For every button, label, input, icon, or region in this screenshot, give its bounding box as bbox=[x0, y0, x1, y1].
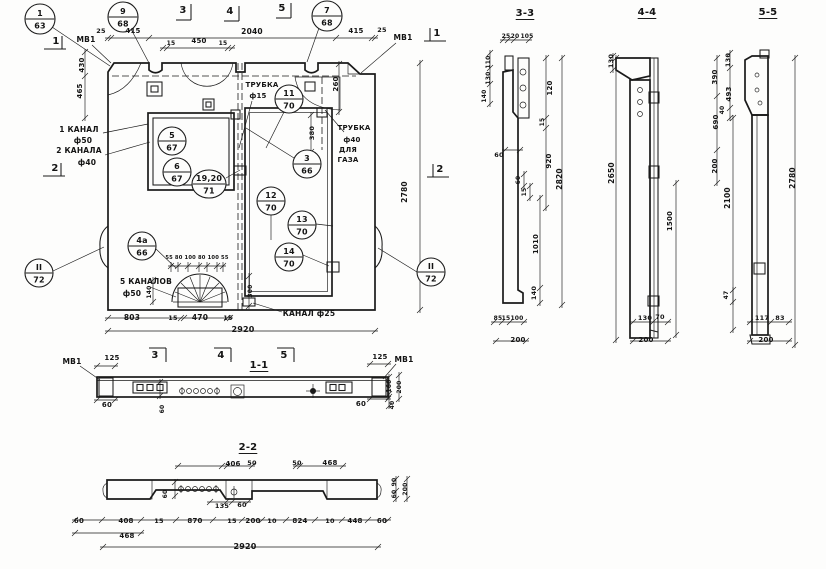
callout-sheet-ref: 67 bbox=[166, 144, 178, 153]
dim-label: 60 bbox=[391, 490, 398, 499]
dim-label: 130 bbox=[724, 53, 732, 67]
dim-label: 60 bbox=[162, 490, 169, 499]
callout-mark: 5 bbox=[169, 131, 175, 140]
dim-label: 390 bbox=[711, 69, 719, 84]
section-1-1-view bbox=[97, 377, 388, 398]
section-5-5-view bbox=[745, 50, 770, 344]
dim-label: 130 bbox=[638, 314, 652, 322]
dim-label: 468 bbox=[119, 532, 134, 540]
callout-mark: 11 bbox=[283, 89, 295, 98]
dim-label: 130 bbox=[485, 71, 492, 84]
right-keyway bbox=[375, 226, 382, 268]
section-4-4-view bbox=[616, 58, 659, 338]
note-tube-gas: ТРУБКА bbox=[338, 124, 371, 132]
section-mark: 3 bbox=[151, 350, 158, 361]
dim-label: 2780 bbox=[400, 181, 409, 203]
dim-label: 50 bbox=[247, 459, 257, 467]
callout-mark: II bbox=[428, 262, 434, 271]
dim-label: 25 bbox=[96, 27, 106, 35]
dim-label: 160 bbox=[386, 379, 393, 392]
dim-label: ГАЗА bbox=[337, 156, 358, 164]
section-mark: 2 bbox=[51, 163, 58, 174]
section-mark: 1 bbox=[52, 36, 59, 47]
drawing-sheet: 163968768117056766719,207136612701370147… bbox=[0, 0, 826, 569]
dim-label: 1010 bbox=[532, 234, 540, 254]
dim-label: 200 bbox=[245, 517, 260, 525]
callout-5-67: 567 bbox=[158, 127, 186, 155]
dim-label: 135 bbox=[215, 502, 229, 510]
note-2-kanala: 2 КАНАЛА bbox=[56, 146, 101, 155]
callout-sheet-ref: 71 bbox=[203, 187, 215, 196]
dim-label: 200 bbox=[711, 158, 719, 173]
dim-label: 117 bbox=[755, 314, 769, 322]
dim-label: 70 bbox=[655, 313, 665, 321]
dim-label: 690 bbox=[712, 114, 720, 129]
dim-label: 200 bbox=[510, 336, 525, 344]
dim-label: 15 bbox=[502, 315, 511, 322]
label-mv1: МВ1 bbox=[77, 35, 96, 44]
dim-label: 140 bbox=[481, 89, 488, 102]
dim-label: 60 bbox=[515, 176, 522, 185]
dim-label: 824 bbox=[292, 517, 307, 525]
callout-11-70: 1170 bbox=[275, 85, 303, 113]
dim-label: 1500 bbox=[666, 211, 674, 231]
dim-label: ф50 bbox=[74, 136, 92, 145]
callout-sheet-ref: 70 bbox=[283, 102, 295, 111]
dim-label: 10 bbox=[325, 517, 335, 525]
lifting-slot bbox=[181, 63, 233, 86]
dim-label: 60 bbox=[102, 401, 112, 409]
dim-label: 200 bbox=[638, 336, 653, 344]
section-mark: 1 bbox=[433, 28, 440, 39]
dim-label: 140 bbox=[146, 285, 153, 298]
section-2-2-view bbox=[103, 480, 381, 499]
dim-label: 15 bbox=[168, 314, 178, 322]
callout-mark: 9 bbox=[120, 7, 126, 16]
dim-label: 450 bbox=[191, 37, 206, 45]
dim-label: 15 bbox=[223, 314, 233, 322]
dim-label: 25 bbox=[377, 26, 387, 34]
dim-label: 60 bbox=[159, 405, 166, 414]
callout-mark: 7 bbox=[324, 6, 330, 15]
note-1-kanal: 1 КАНАЛ bbox=[59, 125, 98, 134]
dim-label: 803 bbox=[124, 313, 140, 322]
main-plan-view bbox=[100, 63, 382, 310]
strand-row bbox=[179, 485, 238, 498]
dim-label: 408 bbox=[118, 517, 133, 525]
section-title: 1-1 bbox=[250, 360, 269, 371]
callout-mark: 12 bbox=[265, 191, 277, 200]
section-title: 2-2 bbox=[239, 442, 258, 453]
dim-label: ДЛЯ bbox=[339, 146, 357, 154]
dim-label: 470 bbox=[192, 313, 208, 322]
callout-13-70: 1370 bbox=[288, 211, 316, 239]
dim-label: ф40 bbox=[343, 136, 360, 144]
dim-label: 55 80 100 80 100 55 bbox=[165, 255, 229, 261]
callout-14-70: 1470 bbox=[275, 243, 303, 271]
dim-label: 380 bbox=[308, 126, 316, 140]
label-mv1: МВ1 bbox=[395, 355, 414, 364]
section-title: 4-4 bbox=[638, 7, 657, 18]
dim-label: 140 bbox=[530, 286, 538, 300]
dim-label: 15 bbox=[219, 40, 228, 47]
callout-mark: 6 bbox=[174, 162, 180, 171]
dim-label: ф50 bbox=[123, 289, 141, 298]
note-5-kanalov: 5 КАНАЛОВ bbox=[120, 277, 172, 286]
section-title: 5-5 bbox=[759, 7, 778, 18]
callout-mark: 1 bbox=[37, 9, 43, 18]
callout-19,20-71: 19,2071 bbox=[192, 170, 226, 198]
dim-label: 20 bbox=[511, 33, 520, 40]
callout-4а-66: 4а66 bbox=[128, 232, 156, 260]
dim-label: 110 bbox=[485, 55, 492, 68]
dim-label: 15 bbox=[539, 118, 546, 127]
dim-label: 60 bbox=[74, 517, 84, 525]
callout-mark: 3 bbox=[304, 154, 310, 163]
dim-label: 130 bbox=[607, 54, 615, 68]
dim-label: 200 bbox=[758, 336, 773, 344]
dim-label: 430 bbox=[78, 57, 86, 72]
section-title: 3-3 bbox=[516, 8, 535, 19]
dim-label: 870 bbox=[187, 517, 202, 525]
dim-label: 415 bbox=[125, 27, 140, 35]
dim-label: 15 bbox=[521, 188, 528, 197]
strand-row bbox=[180, 384, 321, 398]
dim-label: 83 bbox=[775, 314, 784, 322]
dim-label: 105 bbox=[520, 33, 533, 40]
dim-label: 300 bbox=[247, 284, 254, 297]
label-mv1: МВ1 bbox=[394, 33, 413, 42]
dim-label: 493 bbox=[725, 86, 733, 101]
dim-label: 10 bbox=[267, 517, 277, 525]
dim-label: 200 bbox=[396, 380, 403, 393]
dim-label: 40 bbox=[719, 106, 726, 115]
dim-label: 125 bbox=[372, 353, 387, 361]
section-mark: 5 bbox=[278, 3, 285, 14]
callout-sheet-ref: 72 bbox=[33, 276, 45, 285]
dim-label: 50 bbox=[292, 459, 302, 467]
dim-label: 465 bbox=[76, 83, 84, 98]
dim-label: 448 bbox=[347, 517, 362, 525]
callout-mark: II bbox=[36, 263, 42, 272]
callout-sheet-ref: 70 bbox=[296, 228, 308, 237]
callout-sheet-ref: 70 bbox=[283, 260, 295, 269]
callout-7-68: 768 bbox=[312, 1, 342, 31]
label-mv1: МВ1 bbox=[63, 357, 82, 366]
callout-sheet-ref: 68 bbox=[321, 19, 333, 28]
callout-3-66: 366 bbox=[293, 150, 321, 178]
channel-fan bbox=[171, 262, 228, 307]
section-mark: 4 bbox=[217, 350, 224, 361]
dim-label: 100 bbox=[510, 315, 523, 322]
callout-mark: 4а bbox=[136, 236, 147, 245]
dim-label: 415 bbox=[348, 27, 363, 35]
callout-1-63: 163 bbox=[25, 4, 55, 34]
section-mark: 4 bbox=[226, 6, 233, 17]
dim-label: 15 bbox=[167, 40, 176, 47]
note-tube-15: ТРУБКА bbox=[246, 81, 279, 89]
callout-sheet-ref: 66 bbox=[136, 249, 148, 258]
dim-label: 25 bbox=[502, 33, 511, 40]
dim-label: 2920 bbox=[231, 325, 254, 334]
dim-label: 120 bbox=[546, 80, 554, 95]
callout-12-70: 1270 bbox=[257, 187, 285, 215]
dim-label: 2100 bbox=[723, 187, 732, 209]
callout-mark: 14 bbox=[283, 247, 295, 256]
corner-detail-left bbox=[108, 63, 141, 95]
dim-label: 406 bbox=[225, 460, 240, 468]
dim-label: 15 bbox=[227, 517, 237, 525]
dim-label: 2650 bbox=[607, 162, 616, 184]
callout-mark: 13 bbox=[296, 215, 308, 224]
dim-label: 90 bbox=[391, 478, 398, 487]
dim-label: 47 bbox=[723, 291, 730, 300]
callout-6-67: 667 bbox=[163, 158, 191, 186]
dim-label: 125 bbox=[104, 354, 119, 362]
dim-label: 2040 bbox=[241, 27, 263, 36]
callout-mark: 19,20 bbox=[196, 174, 223, 183]
section-mark: 2 bbox=[436, 164, 443, 175]
dim-label: 2920 bbox=[233, 542, 256, 551]
callout-II-72: II72 bbox=[25, 259, 53, 287]
dim-label: 468 bbox=[322, 459, 337, 467]
section-mark: 3 bbox=[179, 5, 186, 16]
note-kanal-25: КАНАЛ ф25 bbox=[283, 309, 336, 318]
callout-II-72: II72 bbox=[417, 258, 445, 286]
callout-sheet-ref: 72 bbox=[425, 275, 437, 284]
section-mark: 5 bbox=[280, 350, 287, 361]
callout-sheet-ref: 70 bbox=[265, 204, 277, 213]
callout-sheet-ref: 63 bbox=[34, 22, 46, 31]
dim-label: 2780 bbox=[788, 167, 797, 189]
dim-label: ф40 bbox=[78, 158, 96, 167]
dim-label: ф15 bbox=[249, 92, 266, 100]
dim-label: 60 bbox=[494, 151, 504, 159]
panel-drawing: 163968768117056766719,207136612701370147… bbox=[0, 0, 826, 569]
dim-label: 2820 bbox=[555, 168, 564, 190]
dim-label: 60 bbox=[377, 517, 387, 525]
dim-label: 60 bbox=[356, 400, 366, 408]
callout-sheet-ref: 66 bbox=[301, 167, 313, 176]
dim-label: 260 bbox=[332, 76, 340, 91]
dim-label: 40 bbox=[389, 401, 396, 410]
callout-sheet-ref: 67 bbox=[171, 175, 183, 184]
dim-label: 15 bbox=[154, 517, 164, 525]
dim-label: 200 bbox=[402, 482, 409, 495]
dim-label: 920 bbox=[545, 153, 553, 168]
dim-label: 60 bbox=[237, 501, 247, 509]
